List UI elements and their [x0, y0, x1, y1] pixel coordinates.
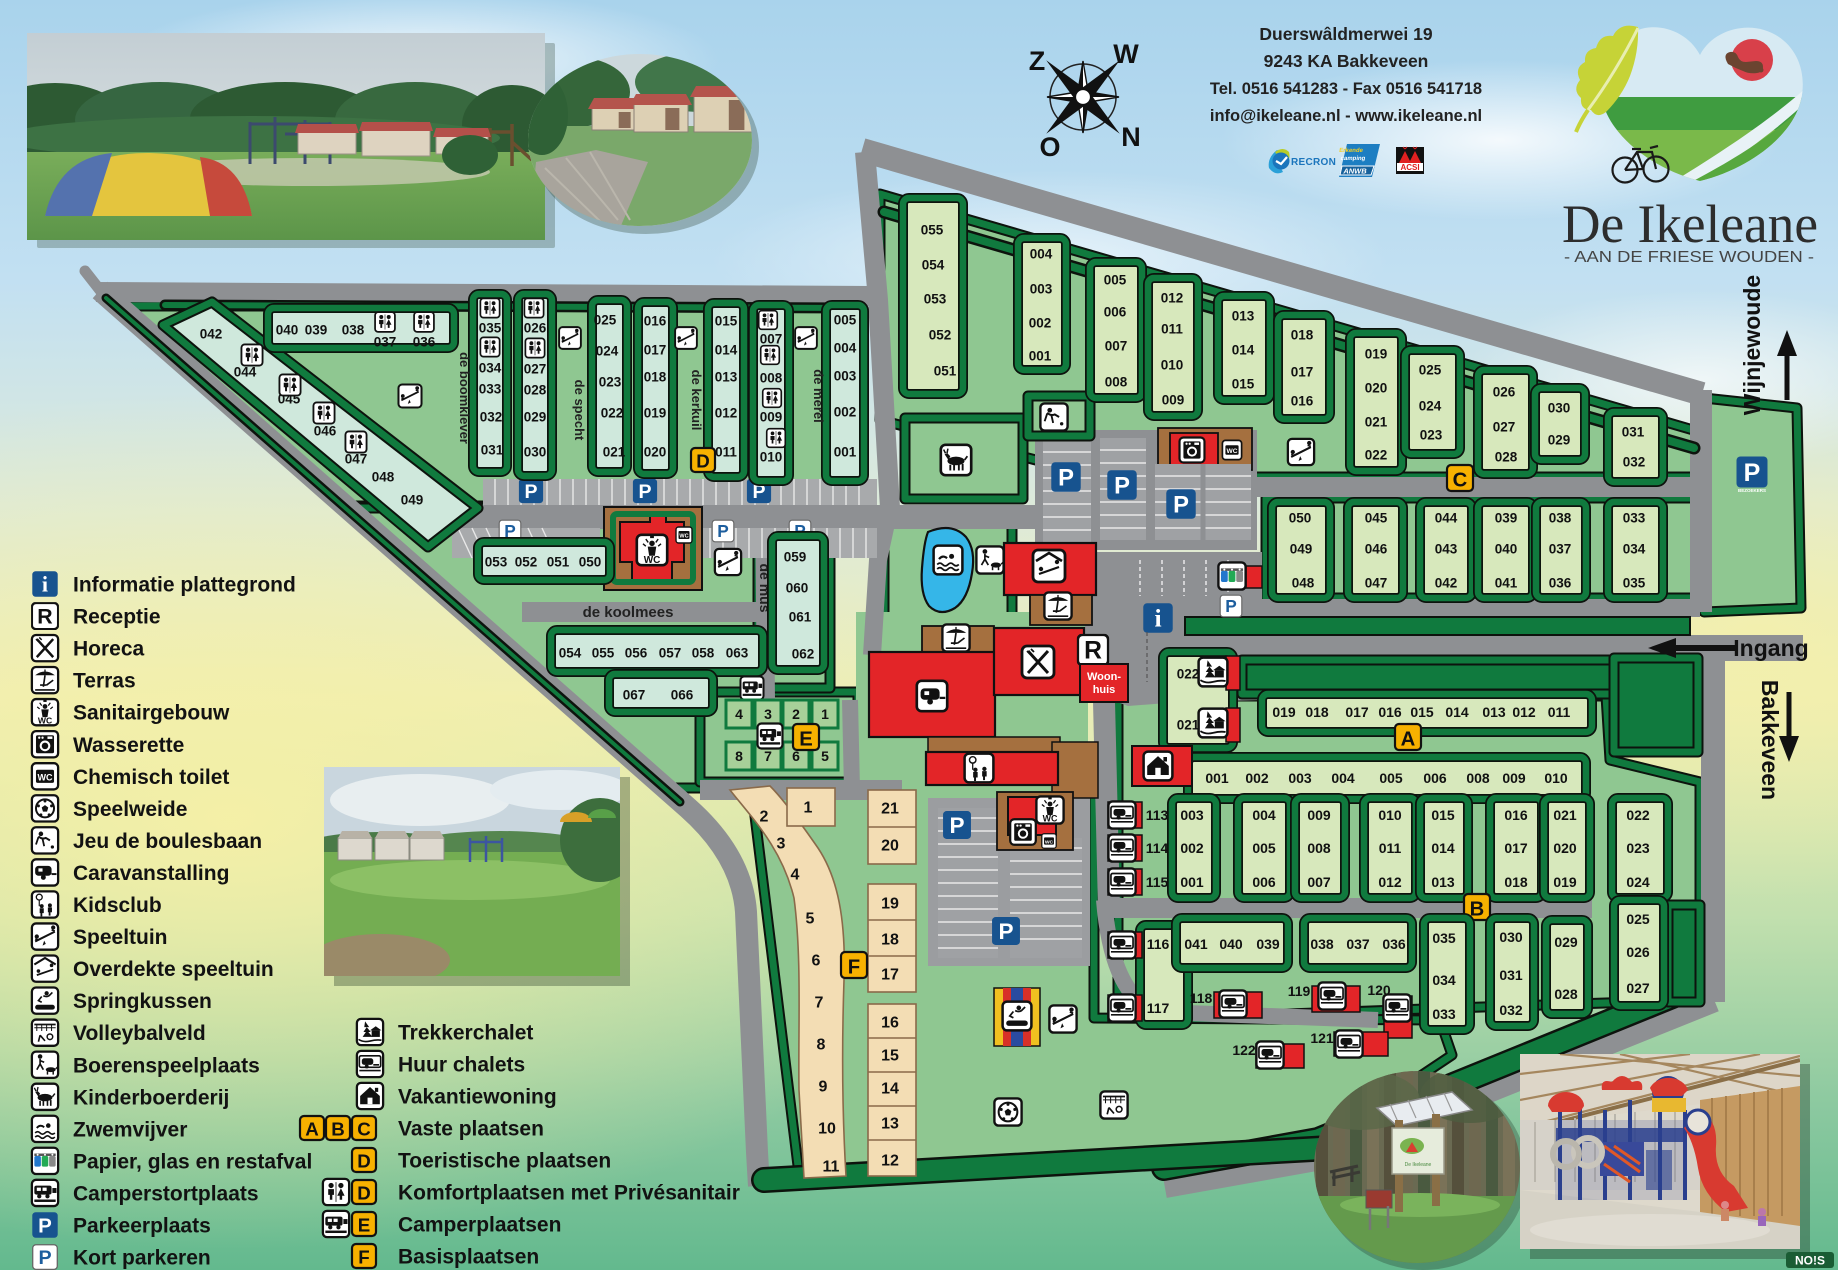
svg-text:026: 026 [524, 321, 547, 336]
svg-text:022: 022 [1626, 807, 1650, 823]
svg-text:011: 011 [1379, 840, 1402, 856]
svg-text:De Ikeleane: De Ikeleane [1562, 194, 1818, 254]
svg-text:027: 027 [524, 362, 547, 377]
svg-text:009: 009 [1502, 770, 1526, 786]
svg-text:051: 051 [934, 364, 957, 379]
svg-text:027: 027 [1493, 420, 1516, 435]
svg-text:Boerenspeelplaats: Boerenspeelplaats [73, 1054, 260, 1077]
svg-text:Vaste plaatsen: Vaste plaatsen [398, 1118, 544, 1141]
svg-text:2: 2 [760, 809, 769, 826]
svg-text:024: 024 [1419, 399, 1442, 414]
svg-text:055: 055 [592, 646, 615, 661]
svg-text:017: 017 [1504, 840, 1528, 856]
svg-text:051: 051 [547, 555, 570, 570]
svg-text:054: 054 [922, 258, 945, 273]
svg-text:D: D [357, 1151, 371, 1172]
svg-text:F: F [358, 1247, 369, 1268]
svg-text:Terras: Terras [73, 670, 136, 693]
svg-text:Tel. 0516 541283 - Fax 0516 54: Tel. 0516 541283 - Fax 0516 541718 [1210, 80, 1482, 98]
svg-text:024: 024 [596, 344, 619, 359]
svg-text:048: 048 [372, 470, 395, 485]
svg-text:Z: Z [1029, 46, 1046, 76]
svg-text:115: 115 [1146, 874, 1169, 890]
svg-text:De Ikeleane: De Ikeleane [1405, 1162, 1432, 1168]
svg-text:008: 008 [1466, 770, 1490, 786]
svg-text:017: 017 [1291, 365, 1314, 380]
svg-text:Sanitairgebouw: Sanitairgebouw [73, 702, 230, 725]
svg-text:21: 21 [881, 801, 899, 818]
svg-text:7: 7 [764, 748, 772, 764]
svg-text:006: 006 [1252, 874, 1276, 890]
svg-text:019: 019 [644, 406, 667, 421]
svg-text:033: 033 [1623, 511, 1646, 526]
svg-text:de kerkuil: de kerkuil [689, 370, 704, 431]
svg-text:027: 027 [1626, 980, 1650, 996]
svg-text:ANWB: ANWB [1342, 167, 1367, 176]
svg-text:042: 042 [1435, 576, 1458, 591]
svg-text:053: 053 [485, 555, 508, 570]
svg-text:036: 036 [413, 335, 436, 350]
svg-text:039: 039 [1256, 936, 1280, 952]
svg-text:E: E [358, 1215, 370, 1236]
svg-text:043: 043 [1435, 542, 1458, 557]
svg-text:Camperstortplaats: Camperstortplaats [73, 1182, 259, 1205]
svg-text:020: 020 [1365, 381, 1388, 396]
svg-text:004: 004 [1030, 247, 1053, 262]
svg-text:002: 002 [834, 405, 857, 420]
svg-text:023: 023 [1420, 428, 1443, 443]
svg-text:Springkussen: Springkussen [73, 990, 212, 1013]
svg-text:042: 042 [200, 327, 223, 342]
svg-text:O: O [1039, 132, 1060, 162]
svg-text:049: 049 [1290, 542, 1313, 557]
svg-text:008: 008 [1307, 840, 1331, 856]
svg-text:10: 10 [818, 1121, 836, 1138]
svg-text:016: 016 [644, 314, 667, 329]
svg-text:055: 055 [921, 223, 944, 238]
svg-text:Vakantiewoning: Vakantiewoning [398, 1086, 557, 1109]
svg-text:036: 036 [1382, 936, 1406, 952]
svg-text:010: 010 [760, 450, 783, 465]
svg-text:025: 025 [1419, 363, 1442, 378]
svg-text:002: 002 [1029, 316, 1052, 331]
svg-text:A: A [305, 1119, 319, 1140]
svg-text:008: 008 [760, 371, 783, 386]
svg-text:032: 032 [480, 410, 503, 425]
svg-text:046: 046 [1365, 542, 1388, 557]
svg-text:A: A [1401, 728, 1416, 750]
svg-text:002: 002 [1180, 840, 1204, 856]
svg-text:059: 059 [784, 550, 807, 565]
svg-text:010: 010 [1544, 770, 1568, 786]
svg-text:045: 045 [1365, 511, 1388, 526]
svg-text:007: 007 [1307, 874, 1331, 890]
svg-text:Parkeerplaats: Parkeerplaats [73, 1215, 211, 1238]
svg-text:019: 019 [1553, 874, 1577, 890]
svg-text:039: 039 [1495, 511, 1518, 526]
svg-text:16: 16 [881, 1015, 899, 1032]
svg-text:015: 015 [1232, 377, 1255, 392]
svg-text:Speelweide: Speelweide [73, 798, 187, 821]
svg-text:info@ikeleane.nl - www.ikelean: info@ikeleane.nl - www.ikeleane.nl [1210, 107, 1482, 125]
svg-text:041: 041 [1184, 936, 1208, 952]
svg-text:11: 11 [823, 1159, 840, 1176]
svg-text:019: 019 [1365, 347, 1388, 362]
svg-text:Komfortplaatsen met Privésanit: Komfortplaatsen met Privésanitair [398, 1182, 740, 1205]
svg-text:026: 026 [1493, 385, 1516, 400]
svg-text:038: 038 [1549, 511, 1572, 526]
svg-text:3: 3 [764, 706, 772, 722]
svg-text:012: 012 [715, 406, 738, 421]
svg-text:de boomklever: de boomklever [457, 352, 472, 444]
svg-text:2: 2 [792, 706, 800, 722]
svg-text:de merel: de merel [811, 369, 826, 422]
svg-text:Volleybalveld: Volleybalveld [73, 1022, 206, 1045]
svg-text:037: 037 [1549, 542, 1572, 557]
svg-text:041: 041 [1495, 576, 1518, 591]
svg-text:015: 015 [1431, 807, 1455, 823]
svg-text:011: 011 [1161, 322, 1183, 337]
svg-text:035: 035 [1623, 576, 1646, 591]
svg-text:019: 019 [1272, 704, 1296, 720]
svg-text:013: 013 [1431, 874, 1455, 890]
svg-text:Camperplaatsen: Camperplaatsen [398, 1214, 561, 1237]
svg-text:035: 035 [1432, 930, 1456, 946]
svg-text:024: 024 [1626, 874, 1650, 890]
svg-text:Bakkeveen: Bakkeveen [1757, 680, 1783, 800]
svg-text:026: 026 [1626, 944, 1650, 960]
svg-text:016: 016 [1504, 807, 1528, 823]
svg-text:036: 036 [1549, 576, 1572, 591]
svg-text:ACSI: ACSI [1400, 163, 1419, 172]
svg-text:067: 067 [623, 688, 646, 703]
svg-text:063: 063 [726, 646, 749, 661]
svg-text:053: 053 [924, 292, 947, 307]
svg-text:022: 022 [1365, 448, 1388, 463]
svg-text:Receptie: Receptie [73, 606, 161, 629]
svg-text:7: 7 [815, 995, 824, 1012]
svg-text:6: 6 [812, 953, 821, 970]
svg-text:062: 062 [792, 647, 815, 662]
svg-text:038: 038 [342, 323, 365, 338]
svg-text:20: 20 [881, 838, 899, 855]
svg-text:012: 012 [1161, 291, 1184, 306]
svg-text:016: 016 [1291, 394, 1314, 409]
svg-text:huis: huis [1093, 684, 1116, 696]
svg-text:006: 006 [1104, 305, 1127, 320]
svg-text:058: 058 [692, 646, 715, 661]
svg-text:Jeu de boulesbaan: Jeu de boulesbaan [73, 830, 262, 853]
svg-text:025: 025 [594, 313, 617, 328]
svg-text:116: 116 [1147, 936, 1170, 952]
svg-text:012: 012 [1512, 704, 1536, 720]
svg-text:119: 119 [1288, 983, 1311, 999]
svg-text:010: 010 [1378, 807, 1402, 823]
svg-text:015: 015 [1410, 704, 1434, 720]
svg-text:3: 3 [777, 836, 786, 853]
svg-text:004: 004 [1252, 807, 1276, 823]
svg-text:030: 030 [524, 445, 547, 460]
svg-text:9: 9 [819, 1079, 828, 1096]
svg-text:034: 034 [1623, 542, 1646, 557]
svg-text:040: 040 [1495, 542, 1518, 557]
svg-text:044: 044 [1435, 511, 1458, 526]
svg-text:005: 005 [1379, 770, 1403, 786]
svg-text:Erkende: Erkende [1339, 148, 1364, 154]
svg-text:5: 5 [806, 911, 815, 928]
svg-text:003: 003 [1288, 770, 1312, 786]
svg-text:122: 122 [1232, 1042, 1256, 1058]
svg-text:1: 1 [804, 800, 813, 817]
svg-text:030: 030 [1499, 929, 1523, 945]
svg-text:W: W [1113, 39, 1139, 69]
svg-text:021: 021 [1553, 807, 1577, 823]
svg-text:Caravanstalling: Caravanstalling [73, 862, 229, 885]
svg-text:018: 018 [1504, 874, 1528, 890]
svg-text:121: 121 [1310, 1030, 1334, 1046]
svg-text:049: 049 [401, 493, 424, 508]
svg-text:1: 1 [821, 706, 829, 722]
svg-text:Trekkerchalet: Trekkerchalet [398, 1022, 533, 1045]
svg-text:Kort parkeren: Kort parkeren [73, 1247, 211, 1270]
svg-text:Horeca: Horeca [73, 638, 145, 661]
svg-text:009: 009 [760, 410, 783, 425]
svg-text:D: D [357, 1183, 371, 1204]
svg-text:013: 013 [1482, 704, 1506, 720]
svg-text:Chemisch toilet: Chemisch toilet [73, 766, 229, 789]
svg-text:8: 8 [735, 748, 743, 764]
svg-text:037: 037 [374, 335, 397, 350]
svg-text:018: 018 [1305, 704, 1329, 720]
svg-text:034: 034 [1432, 972, 1456, 988]
svg-text:17: 17 [881, 967, 899, 984]
svg-text:Overdekte speeltuin: Overdekte speeltuin [73, 958, 274, 981]
svg-text:057: 057 [659, 646, 682, 661]
svg-text:13: 13 [881, 1116, 899, 1133]
svg-text:018: 018 [644, 370, 667, 385]
svg-text:C: C [357, 1119, 371, 1140]
svg-text:011: 011 [715, 445, 737, 460]
svg-text:048: 048 [1292, 576, 1315, 591]
svg-text:005: 005 [1104, 273, 1127, 288]
svg-text:Basisplaatsen: Basisplaatsen [398, 1246, 539, 1269]
svg-text:014: 014 [1232, 343, 1255, 358]
svg-text:BEZOEKERS: BEZOEKERS [1738, 488, 1766, 493]
svg-text:Ingang: Ingang [1733, 635, 1808, 661]
svg-text:camping: camping [1340, 156, 1366, 162]
svg-text:Papier, glas en restafval: Papier, glas en restafval [73, 1150, 312, 1173]
svg-text:C: C [1453, 469, 1468, 491]
svg-text:003: 003 [1180, 807, 1204, 823]
svg-text:009: 009 [1162, 393, 1185, 408]
svg-text:14: 14 [881, 1081, 899, 1098]
svg-text:029: 029 [1554, 934, 1578, 950]
svg-text:005: 005 [834, 313, 857, 328]
svg-text:003: 003 [834, 369, 857, 384]
svg-text:- AAN DE FRIESE WOUDEN -: - AAN DE FRIESE WOUDEN - [1564, 249, 1814, 266]
svg-text:002: 002 [1245, 770, 1269, 786]
svg-text:037: 037 [1346, 936, 1370, 952]
svg-text:Speeltuin: Speeltuin [73, 926, 168, 949]
svg-text:029: 029 [1548, 433, 1571, 448]
svg-text:Kidsclub: Kidsclub [73, 894, 162, 917]
svg-text:014: 014 [1445, 704, 1469, 720]
svg-text:021: 021 [1177, 718, 1200, 733]
svg-text:Informatie plattegrond: Informatie plattegrond [73, 574, 296, 597]
svg-text:4: 4 [735, 706, 743, 722]
svg-text:004: 004 [834, 341, 857, 356]
svg-text:020: 020 [1553, 840, 1577, 856]
svg-text:E: E [799, 728, 813, 750]
svg-text:018: 018 [1291, 328, 1314, 343]
svg-text:Toeristische plaatsen: Toeristische plaatsen [398, 1150, 611, 1173]
svg-text:031: 031 [481, 443, 504, 458]
svg-text:Zwemvijver: Zwemvijver [73, 1118, 187, 1141]
svg-text:008: 008 [1105, 375, 1128, 390]
svg-text:001: 001 [1205, 770, 1229, 786]
svg-text:061: 061 [789, 610, 812, 625]
svg-text:de koolmees: de koolmees [583, 604, 674, 621]
svg-text:001: 001 [1029, 349, 1052, 364]
svg-text:021: 021 [1365, 415, 1388, 430]
svg-text:9243 KA Bakkeveen: 9243 KA Bakkeveen [1264, 51, 1429, 71]
svg-text:028: 028 [524, 383, 547, 398]
svg-text:031: 031 [1622, 425, 1645, 440]
svg-text:006: 006 [1423, 770, 1447, 786]
svg-text:038: 038 [1310, 936, 1334, 952]
svg-text:023: 023 [1626, 840, 1650, 856]
svg-text:014: 014 [1431, 840, 1455, 856]
svg-text:033: 033 [479, 382, 502, 397]
svg-text:007: 007 [760, 332, 783, 347]
svg-text:D: D [696, 451, 710, 472]
svg-text:040: 040 [276, 323, 299, 338]
svg-text:18: 18 [881, 932, 899, 949]
svg-text:020: 020 [644, 445, 667, 460]
svg-text:028: 028 [1495, 450, 1518, 465]
svg-text:040: 040 [1219, 936, 1243, 952]
svg-text:035: 035 [479, 321, 502, 336]
svg-text:118: 118 [1190, 990, 1213, 1006]
svg-text:017: 017 [1345, 704, 1369, 720]
svg-text:004: 004 [1331, 770, 1355, 786]
svg-text:Huur chalets: Huur chalets [398, 1054, 525, 1077]
svg-text:N: N [1121, 122, 1141, 152]
svg-text:044: 044 [234, 365, 257, 380]
svg-text:NO!S: NO!S [1795, 1254, 1825, 1268]
svg-text:023: 023 [599, 375, 622, 390]
svg-text:Woon-: Woon- [1087, 671, 1121, 683]
svg-text:012: 012 [1378, 874, 1402, 890]
svg-text:029: 029 [524, 410, 547, 425]
svg-text:Wasserette: Wasserette [73, 734, 184, 757]
svg-text:014: 014 [715, 343, 738, 358]
svg-text:013: 013 [715, 370, 738, 385]
svg-text:032: 032 [1499, 1002, 1523, 1018]
svg-text:060: 060 [786, 581, 809, 596]
svg-text:017: 017 [644, 343, 667, 358]
svg-text:001: 001 [1180, 874, 1204, 890]
svg-text:12: 12 [881, 1153, 899, 1170]
svg-text:001: 001 [834, 445, 857, 460]
svg-text:050: 050 [579, 555, 602, 570]
svg-text:Duerswâldmerwei 19: Duerswâldmerwei 19 [1259, 24, 1432, 44]
svg-text:F: F [848, 956, 860, 978]
svg-text:113: 113 [1146, 807, 1169, 823]
svg-text:007: 007 [1105, 339, 1128, 354]
svg-text:039: 039 [305, 323, 328, 338]
svg-text:19: 19 [881, 896, 899, 913]
svg-text:003: 003 [1030, 282, 1053, 297]
svg-text:15: 15 [881, 1048, 899, 1065]
svg-text:046: 046 [314, 424, 337, 439]
svg-text:031: 031 [1499, 967, 1523, 983]
svg-text:050: 050 [1289, 511, 1312, 526]
svg-text:052: 052 [929, 328, 952, 343]
svg-text:047: 047 [1365, 576, 1388, 591]
svg-text:de specht: de specht [572, 380, 587, 441]
svg-text:028: 028 [1554, 986, 1578, 1002]
svg-text:066: 066 [671, 688, 694, 703]
svg-text:034: 034 [479, 361, 502, 376]
svg-text:021: 021 [603, 445, 626, 460]
svg-text:054: 054 [559, 646, 582, 661]
svg-text:B: B [331, 1119, 345, 1140]
svg-text:025: 025 [1626, 911, 1650, 927]
svg-text:015: 015 [715, 314, 738, 329]
svg-text:011: 011 [1548, 704, 1571, 720]
svg-text:016: 016 [1378, 704, 1402, 720]
svg-text:005: 005 [1252, 840, 1276, 856]
svg-text:8: 8 [817, 1037, 826, 1054]
svg-text:047: 047 [345, 452, 368, 467]
svg-text:022: 022 [1177, 667, 1200, 682]
svg-text:Kinderboerderij: Kinderboerderij [73, 1086, 229, 1109]
svg-text:022: 022 [601, 406, 624, 421]
svg-text:5: 5 [821, 748, 829, 764]
svg-text:032: 032 [1623, 455, 1646, 470]
svg-text:056: 056 [625, 646, 648, 661]
svg-text:117: 117 [1147, 1000, 1170, 1016]
svg-text:114: 114 [1146, 840, 1169, 856]
svg-text:033: 033 [1432, 1006, 1456, 1022]
svg-text:013: 013 [1232, 309, 1255, 324]
svg-text:030: 030 [1548, 401, 1571, 416]
svg-text:4: 4 [791, 867, 800, 884]
svg-text:052: 052 [515, 555, 538, 570]
svg-text:009: 009 [1307, 807, 1331, 823]
svg-text:Wijnjewoude: Wijnjewoude [1739, 275, 1765, 415]
svg-text:010: 010 [1161, 358, 1184, 373]
svg-text:RECRON: RECRON [1291, 157, 1336, 168]
